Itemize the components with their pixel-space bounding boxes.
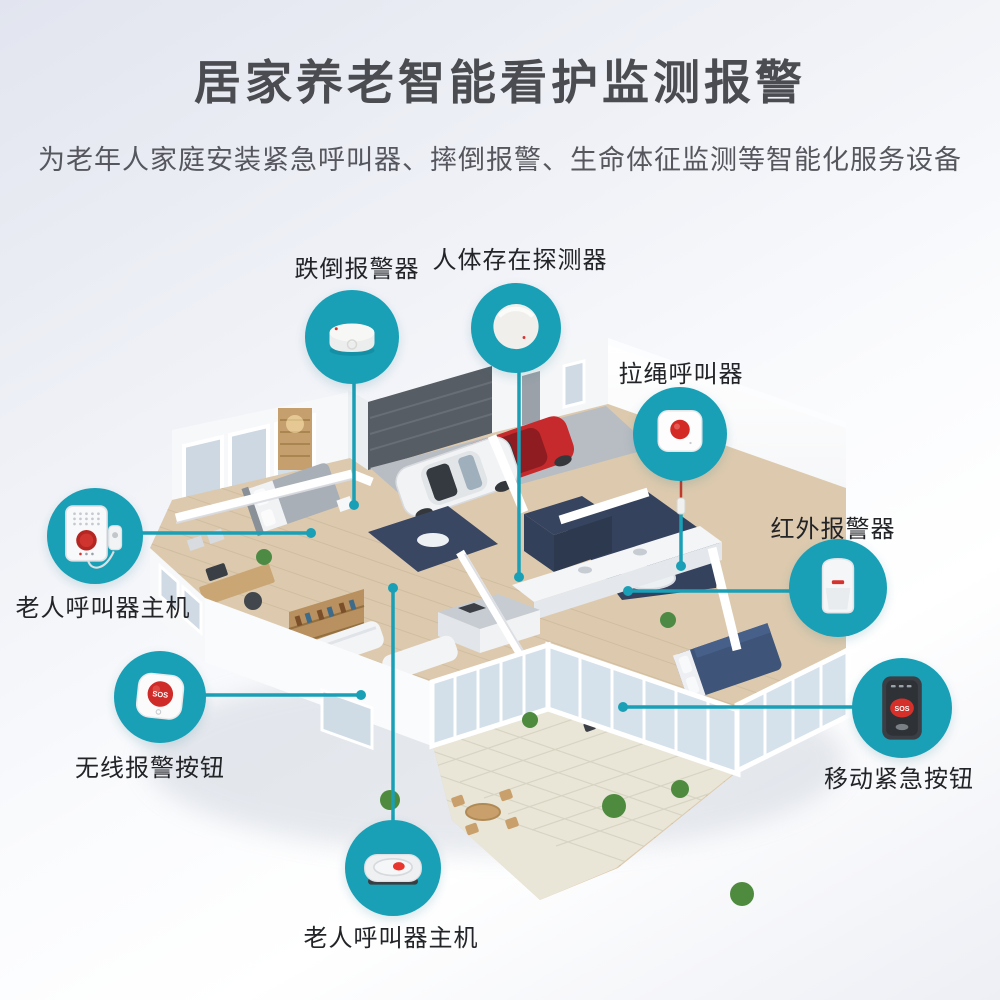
callout-infrared-alarm (789, 539, 887, 637)
mobile-sos-device-icon: SOS (864, 670, 940, 746)
fall-alarm-puck-icon (316, 301, 388, 373)
callout-presence-detector (471, 283, 561, 373)
mobile-sos-text: SOS (894, 705, 909, 713)
callout-wireless-sos-button: SOS (114, 651, 206, 743)
wall-host-device-icon (54, 495, 136, 577)
presence-sensor-disc-icon (481, 293, 551, 363)
promo-page: 居家养老智能看护监测报警 为老年人家庭安装紧急呼叫器、摔倒报警、生命体征监测等智… (0, 0, 1000, 1000)
label-presence-detector: 人体存在探测器 (433, 240, 608, 275)
callout-mobile-sos-button: SOS (852, 658, 952, 758)
label-fall-alarm: 跌倒报警器 (295, 249, 420, 284)
callout-wall-caller-host (47, 488, 143, 584)
wireless-sos-text: SOS (152, 689, 169, 700)
floorplan-illustration (0, 0, 1000, 1000)
callout-pull-cord-caller (633, 387, 727, 481)
label-pull-cord-caller: 拉绳呼叫器 (619, 354, 744, 389)
pull-cord-button-icon (644, 398, 716, 470)
wireless-sos-button-icon: SOS (124, 661, 196, 733)
desk-host-device-icon (353, 828, 433, 908)
label-desk-caller-host: 老人呼叫器主机 (304, 918, 479, 953)
pir-motion-sensor-icon (801, 551, 875, 625)
label-wireless-sos-button: 无线报警按钮 (75, 748, 225, 783)
callout-desk-caller-host (345, 820, 441, 916)
label-mobile-sos-button: 移动紧急按钮 (824, 759, 974, 794)
callout-fall-alarm (305, 290, 399, 384)
label-wall-caller-host: 老人呼叫器主机 (16, 588, 191, 623)
back-door (522, 371, 540, 428)
